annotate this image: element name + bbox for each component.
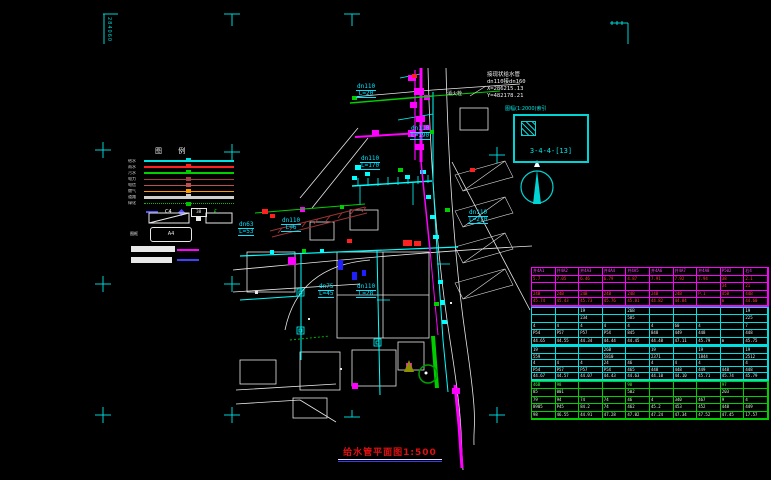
table-cell: 2512 <box>744 354 768 361</box>
table-cell: 44.82 <box>650 298 674 306</box>
table-cell: 46.55 <box>556 412 580 419</box>
legend-line-sample <box>144 160 234 162</box>
annotation-line: Y=482178.21 <box>487 93 526 100</box>
map-index-box: 3-4-4-[13] <box>513 114 589 163</box>
survey-points <box>255 291 452 372</box>
table-cell <box>603 382 627 389</box>
table-cell <box>697 308 721 315</box>
existing-water-pipes <box>240 74 458 395</box>
table-cell: 井4A5 <box>626 268 650 276</box>
table-cell <box>721 360 745 367</box>
table-cell <box>603 308 627 315</box>
north-arrow <box>521 160 553 204</box>
table-cell <box>650 283 674 291</box>
table-cell: 右4 <box>744 268 768 276</box>
table-cell: 34 <box>721 283 745 291</box>
annotation-line: 接现状给水管 <box>487 72 526 79</box>
table-cell: 467 <box>697 397 721 404</box>
table-cell <box>744 382 768 389</box>
table-cell: 19 <box>579 308 603 315</box>
table-cell: 24B <box>532 291 556 299</box>
table-cell: 79 <box>532 397 556 404</box>
table-cell: 47.28 <box>603 412 627 419</box>
legend-row-label: 给水 <box>128 159 144 163</box>
table-cell: 19 <box>744 347 768 354</box>
table-cell <box>697 315 721 322</box>
table-cell: 4 <box>603 323 627 330</box>
table-cell <box>697 283 721 291</box>
table-cell: 26B <box>626 308 650 315</box>
table-cell: 4.87 <box>626 276 650 284</box>
table-cell: 448 <box>744 330 768 337</box>
title-underline-blue <box>338 461 442 462</box>
table-cell <box>556 354 580 361</box>
table-cell: 47.45 <box>721 412 745 419</box>
legend-line-glyph <box>186 177 191 181</box>
table-cell: 44.10 <box>650 373 674 380</box>
table-cell: 4 <box>674 360 698 367</box>
table-cell <box>674 283 698 291</box>
table-cell <box>674 354 698 361</box>
table-cell: 7 <box>744 323 768 330</box>
table-cell: 19 <box>697 347 721 354</box>
table-cell: 203 <box>721 389 745 396</box>
table-cell <box>697 382 721 389</box>
table-cell: 845 <box>626 330 650 337</box>
table-cell: 45.71 <box>697 373 721 380</box>
table-cell: 44.48 <box>650 338 674 345</box>
table-cell: 98 <box>556 382 580 389</box>
table-cell <box>532 315 556 322</box>
table-cell <box>674 347 698 354</box>
table-cell <box>650 308 674 315</box>
table-cell: 2371 <box>650 354 674 361</box>
table-cell: 94 <box>556 397 580 404</box>
table-cell: 44.34 <box>579 338 603 345</box>
table-cell: 24B <box>579 291 603 299</box>
legend-frame-label: 图框 <box>130 231 138 237</box>
table-cell: 559 <box>532 354 556 361</box>
table-cell: P54 <box>532 330 556 337</box>
table-cell: P57 <box>579 330 603 337</box>
annotation-line: X=286215.13 <box>487 86 526 93</box>
table-cell: 44.07 <box>579 373 603 380</box>
table-cell: 45.81 <box>626 298 650 306</box>
legend-row: 绿化 <box>128 200 238 206</box>
table-cell: 60 <box>674 323 698 330</box>
table-cell: 47.34 <box>674 412 698 419</box>
table-cell <box>674 308 698 315</box>
table-cell <box>650 315 674 322</box>
table-cell: 21 <box>744 283 768 291</box>
table-cell <box>721 347 745 354</box>
table-cell: 井4A8 <box>697 268 721 276</box>
table-cell: 502 <box>626 389 650 396</box>
legend-line-sample <box>144 203 234 204</box>
table-cell <box>579 347 603 354</box>
table-section: 46B9898978500150220379947474464340467948… <box>531 381 769 420</box>
table-cell: 452 <box>697 404 721 411</box>
title-underline <box>338 459 442 460</box>
pipe-size-label: dn110L=6 <box>281 218 301 232</box>
legend-line-glyph <box>186 158 191 162</box>
table-cell: 44.44 <box>603 338 627 345</box>
table-cell: P5X <box>603 330 627 337</box>
table-cell: 47.52 <box>697 412 721 419</box>
table-cell: 2.1 <box>744 276 768 284</box>
table-cell: 19 <box>744 308 768 315</box>
table-cell: 44.67 <box>532 373 556 380</box>
legend-solid-bar <box>131 246 175 252</box>
table-cell <box>579 382 603 389</box>
table-cell <box>626 283 650 291</box>
table-cell: P45 <box>556 404 580 411</box>
table-cell: 225 <box>744 315 768 322</box>
table-cell: 74 <box>603 404 627 411</box>
table-cell: P57 <box>556 330 580 337</box>
marker-triangle <box>404 360 414 372</box>
table-cell: 24B <box>626 291 650 299</box>
table-cell: 7.05 <box>556 276 580 284</box>
table-cell: 19 <box>532 347 556 354</box>
table-section: 1926B192345852254444446047P54P57P57P5X84… <box>531 307 769 346</box>
table-cell <box>603 315 627 322</box>
hatch-swatch <box>521 121 536 136</box>
table-cell: 45B <box>721 291 745 299</box>
cad-drawing-canvas: 284060 接现状给水管dn110接dn160X=286215.13Y=482… <box>0 0 771 480</box>
table-cell: 6.79 <box>603 276 627 284</box>
legend-title: 图 例 <box>155 146 192 156</box>
table-cell: 4 <box>532 323 556 330</box>
table-cell: 448 <box>744 367 768 374</box>
table-cell <box>650 389 674 396</box>
legend-line-sample <box>144 185 234 186</box>
table-cell: 24 <box>603 360 627 367</box>
table-cell: 44.10 <box>674 373 698 380</box>
table-cell: 448 <box>674 367 698 374</box>
legend-line-sample <box>144 191 234 192</box>
grid-coordinate-label: 284060 <box>106 17 112 42</box>
table-cell: 340 <box>674 397 698 404</box>
table-cell <box>697 298 721 306</box>
table-cell <box>556 283 580 291</box>
pipe-size-label: dn75L=45 <box>318 284 334 298</box>
legend-gate-symbols <box>148 211 234 225</box>
legend-line-glyph <box>186 164 191 168</box>
table-cell: 8905 <box>532 404 556 411</box>
table-cell: 46 <box>626 360 650 367</box>
table-cell: 44.55 <box>556 338 580 345</box>
drawing-title: 给水管平面图1:500 <box>338 445 442 458</box>
table-cell: 97 <box>721 382 745 389</box>
legend-line-rows: 给水雨水污水电力电信燃气道路绿化 <box>128 158 238 206</box>
legend-row-label: 燃气 <box>128 189 144 193</box>
table-cell: 45.43 <box>556 298 580 306</box>
table-cell: 449 <box>744 404 768 411</box>
table-cell: 44.65 <box>532 338 556 345</box>
legend-line-glyph <box>186 189 191 193</box>
table-cell: 44.43 <box>603 373 627 380</box>
pipe-size-label: dn63L=53 <box>238 222 254 236</box>
pipe-size-label: dn110L=270 <box>468 210 488 224</box>
table-cell: 449 <box>697 367 721 374</box>
table-cell: 4 <box>650 397 674 404</box>
table-cell: 47.11 <box>674 338 698 345</box>
table-cell <box>721 330 745 337</box>
table-cell <box>603 389 627 396</box>
table-cell: 84.2 <box>579 404 603 411</box>
table-cell <box>674 382 698 389</box>
table-cell: 4 <box>532 360 556 367</box>
table-cell: 24B <box>674 291 698 299</box>
table-cell: 585 <box>626 315 650 322</box>
table-cell: 7.92 <box>674 276 698 284</box>
table-cell: 45.79 <box>744 373 768 380</box>
legend-row-label: 雨水 <box>128 165 144 169</box>
connection-annotation: 接现状给水管dn110接dn160X=286215.13Y=482178.21 <box>487 72 526 100</box>
table-cell <box>532 308 556 315</box>
table-cell <box>626 347 650 354</box>
table-cell: 井4A6 <box>650 268 674 276</box>
table-cell: 45.73 <box>579 298 603 306</box>
legend-line-glyph <box>186 202 191 206</box>
table-cell <box>721 315 745 322</box>
table-cell: m <box>721 338 745 345</box>
table-cell: 井4A1 <box>532 268 556 276</box>
table-cell: 44.63 <box>626 373 650 380</box>
table-cell <box>556 308 580 315</box>
table-cell: 45.2 <box>650 404 674 411</box>
table-cell: 4 <box>697 323 721 330</box>
map-text-label: 消火栓 <box>447 90 462 97</box>
table-cell: 98 <box>626 382 650 389</box>
table-cell: 001 <box>556 389 580 396</box>
table-cell: 465 <box>626 367 650 374</box>
table-cell: 98 <box>532 412 556 419</box>
table-cell: 47.24 <box>650 412 674 419</box>
table-cell: 448 <box>721 404 745 411</box>
table-cell: 4 <box>579 323 603 330</box>
table-cell <box>721 354 745 361</box>
legend-line-glyph <box>186 170 191 174</box>
table-cell: 44B <box>744 291 768 299</box>
table-cell <box>603 283 627 291</box>
table-cell: 45.79 <box>697 338 721 345</box>
table-cell: 45.75 <box>744 338 768 345</box>
table-cell: 74 <box>603 397 627 404</box>
table-cell: 74 <box>579 397 603 404</box>
legend-frame-box: A4 <box>150 227 192 242</box>
table-cell: 234 <box>579 315 603 322</box>
table-cell: 448 <box>721 367 745 374</box>
table-cell: 45.74 <box>532 298 556 306</box>
legend-row-label: 污水 <box>128 171 144 175</box>
table-cell: 448 <box>650 367 674 374</box>
table-cell: 24B <box>556 291 580 299</box>
road-network <box>233 68 532 470</box>
table-cell: 46 <box>626 397 650 404</box>
table-cell: 44.84 <box>674 298 698 306</box>
table-cell <box>579 389 603 396</box>
table-cell: 4 <box>579 360 603 367</box>
legend-blue-line <box>177 259 199 261</box>
annotation-line: dn110接dn160 <box>487 79 526 86</box>
table-cell <box>674 315 698 322</box>
legend-line-sample <box>144 179 234 180</box>
table-cell <box>721 308 745 315</box>
table-cell: 85 <box>532 389 556 396</box>
index-sheet-code: 3-4-4-[13] <box>515 147 587 155</box>
table-cell <box>579 283 603 291</box>
table-cell: 47.02 <box>626 412 650 419</box>
table-cell <box>721 323 745 330</box>
table-cell: 44.57 <box>556 373 580 380</box>
legend-solid-bar <box>131 257 172 263</box>
legend-row-label: 电力 <box>128 177 144 181</box>
drawing-title-block: 给水管平面图1:500 <box>338 445 442 462</box>
table-cell: P57 <box>579 367 603 374</box>
legend-row-label: 道路 <box>128 195 144 199</box>
table-cell: 4 <box>556 360 580 367</box>
table-cell: 4 <box>650 360 674 367</box>
table-cell: 45.74 <box>721 373 745 380</box>
table-section: 1926B19191955958102371184425124442446444… <box>531 346 769 381</box>
table-cell <box>744 389 768 396</box>
table-cell: 7.91 <box>650 276 674 284</box>
legend-line-glyph <box>186 194 191 198</box>
table-cell: 19 <box>650 347 674 354</box>
table-cell <box>556 315 580 322</box>
table-cell: 44.45 <box>626 338 650 345</box>
pipe-size-label: dn110L=190 <box>410 126 430 140</box>
table-cell: 24B <box>603 291 627 299</box>
table-cell: m <box>721 298 745 306</box>
table-cell: 4 <box>650 323 674 330</box>
table-cell: 46B <box>532 382 556 389</box>
table-cell: 井4A3 <box>579 268 603 276</box>
table-cell: 453 <box>674 404 698 411</box>
table-cell: 45.76 <box>603 298 627 306</box>
table-cell <box>556 347 580 354</box>
table-cell: 4 <box>556 323 580 330</box>
table-cell: P502 <box>721 268 745 276</box>
legend-line-sample <box>144 172 234 174</box>
legend-line-sample <box>144 196 234 199</box>
table-cell: P57 <box>556 367 580 374</box>
table-cell: 448 <box>697 330 721 337</box>
index-box-label: 图幅(1:2000)索引 <box>505 105 547 112</box>
hatched-stalls <box>455 161 513 299</box>
table-cell: 44.60 <box>744 298 768 306</box>
table-cell: 5810 <box>603 354 627 361</box>
legend-row-label: 绿化 <box>128 201 144 205</box>
design-water-pipes <box>355 68 462 468</box>
table-cell: 6.46 <box>579 276 603 284</box>
table-cell: 24B <box>650 291 674 299</box>
table-cell <box>579 354 603 361</box>
table-cell: P54 <box>532 367 556 374</box>
table-cell: 4 <box>697 360 721 367</box>
table-cell: 462 <box>626 404 650 411</box>
table-cell: 44.91 <box>579 412 603 419</box>
table-cell: 38 <box>721 276 745 284</box>
legend-row-label: 电信 <box>128 183 144 187</box>
table-cell: 848 <box>650 330 674 337</box>
table-cell: 井4A4 <box>603 268 627 276</box>
legend-line-sample <box>144 166 234 168</box>
table-cell <box>697 389 721 396</box>
table-cell: P.1 <box>697 291 721 299</box>
table-cell: 井4A2 <box>556 268 580 276</box>
legend-line-glyph <box>186 183 191 187</box>
legend-magenta-line <box>177 249 199 251</box>
table-cell: 4 <box>744 397 768 404</box>
table-cell: 4 <box>744 360 768 367</box>
table-cell: 17.57 <box>744 412 768 419</box>
table-cell: 4 <box>626 323 650 330</box>
pipe-size-label: dn110L=170 <box>360 156 380 170</box>
table-cell <box>626 354 650 361</box>
pipe-size-label: dn110L=28 <box>356 284 376 298</box>
table-cell <box>532 283 556 291</box>
table-cell: 5.7 <box>532 276 556 284</box>
table-cell: 井4A7 <box>674 268 698 276</box>
table-cell: 9 <box>721 397 745 404</box>
table-cell: 26B <box>603 347 627 354</box>
table-cell: P5X <box>603 367 627 374</box>
table-cell: 449 <box>674 330 698 337</box>
table-cell: 7.94 <box>697 276 721 284</box>
table-cell: 1844 <box>697 354 721 361</box>
table-cell <box>674 389 698 396</box>
table-section: 井4A1井4A2井4A3井4A4井4A5井4A6井4A7井4A8P502右45.… <box>531 267 769 307</box>
table-cell <box>650 382 674 389</box>
pipe-size-label: dn110L=20 <box>356 84 376 98</box>
